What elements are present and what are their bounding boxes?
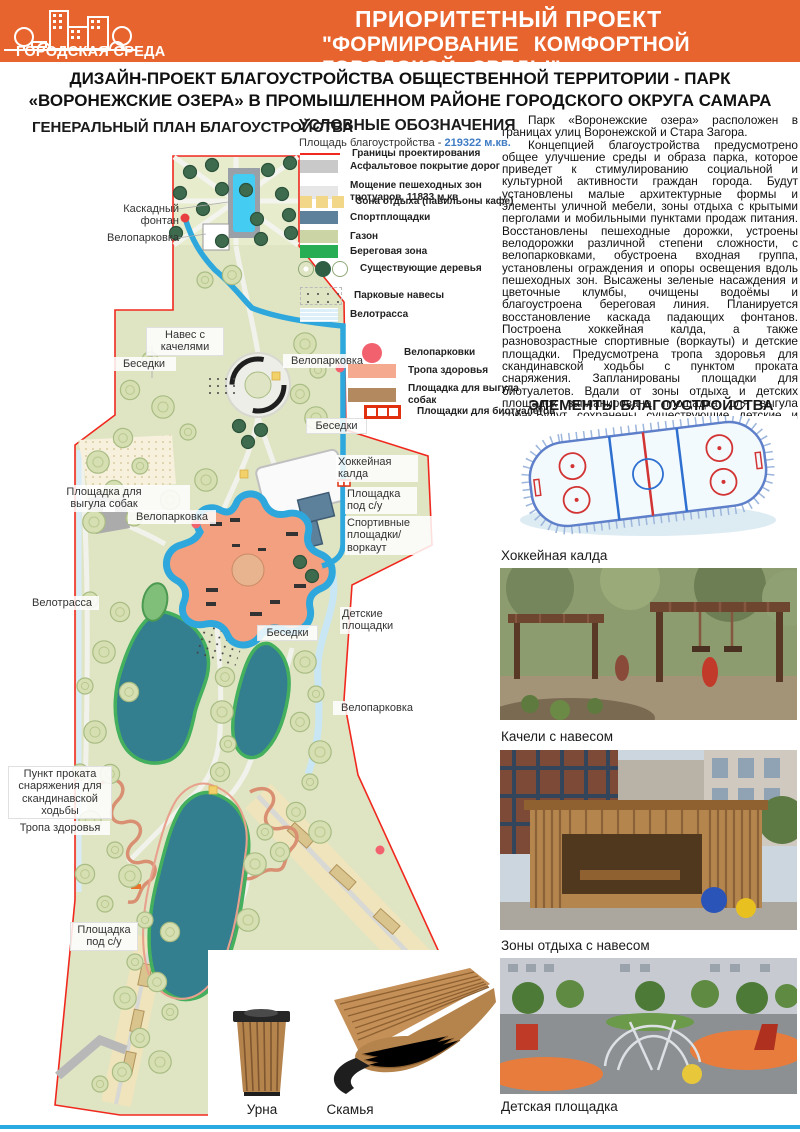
- map-label-hockey-rink: Хоккейная калда: [336, 455, 418, 482]
- bench-leg: [334, 1058, 370, 1094]
- map-label-bike-parking-3: Велопарковка: [128, 510, 216, 524]
- rest-area-canopy-photo: [500, 750, 797, 930]
- legend-swatch-bike-track: [300, 308, 338, 322]
- photo-caption-swings: Качели с навесом: [501, 729, 613, 744]
- bench-image: [298, 962, 496, 1096]
- person-figure: [702, 657, 718, 687]
- description-text: Парк «Воронежские озера» расположен в гр…: [502, 114, 798, 434]
- map-label-nordic-rental: Пункт проката снаряжения для скандинавск…: [8, 766, 112, 819]
- legend-item-sport: Спортплощадки: [300, 211, 430, 224]
- hockey-rink-image: [500, 416, 797, 544]
- legend-swatch-sport: [300, 211, 338, 224]
- legend-swatch-shore: [300, 245, 338, 258]
- legend-item-rest-zone: Зона отдыха (павильоны кафе): [300, 196, 513, 208]
- photo-caption-hockey: Хоккейная калда: [501, 548, 607, 563]
- legend-item-boundary: Границы проектирования: [300, 148, 480, 160]
- logo-title: ГОРОДСКАЯ СРЕДА: [16, 44, 186, 60]
- legend-swatch-bike-parkings: [362, 343, 382, 363]
- map-label-bike-track: Велотрасса: [25, 596, 99, 610]
- wooden-pavilion: [524, 800, 768, 908]
- map-label-kids-grounds: Детские площадки: [340, 607, 410, 634]
- yellow-ball: [736, 898, 756, 918]
- elements-heading: ЭЛЕМЕНТЫ БЛАГОУСТРОЙСТВА: [505, 397, 797, 414]
- legend-item-trees: Существующие деревья: [298, 261, 482, 277]
- legend-swatch-rest-zone: [300, 196, 344, 208]
- map-label-su-site-2: Площадка под с/у: [70, 922, 138, 951]
- map-label-dog-area: Площадка для выгула собак: [18, 485, 190, 512]
- map-label-su-site-1: Площадка под с/у: [345, 487, 417, 514]
- description-paragraph-2: Концепцией благоустройства предусмотрено…: [502, 139, 798, 434]
- map-label-gazebos-1: Беседки: [112, 357, 176, 371]
- legend-swatch-boundary: [300, 153, 340, 155]
- legend-item-shore: Береговая зона: [300, 245, 427, 258]
- legend-swatch-lawn: [300, 230, 338, 243]
- blue-ball: [701, 887, 727, 913]
- description-paragraph-1: Парк «Воронежские озера» расположен в гр…: [502, 114, 798, 139]
- legend-swatch-health-trail: [348, 364, 396, 378]
- legend-item-dog-area: Площадка для выгула собак: [348, 383, 519, 407]
- legend-item-bike-parkings: Велопарковки: [348, 343, 475, 363]
- page-title: ДИЗАЙН-ПРОЕКТ БЛАГОУСТРОЙСТВА ОБЩЕСТВЕНН…: [0, 68, 800, 112]
- page-title-line2: «ВОРОНЕЖСКИЕ ОЗЕРА» В ПРОМЫШЛЕННОМ РАЙОН…: [0, 90, 800, 112]
- legend-swatch-biotoilets: [364, 405, 401, 419]
- legend-item-asphalt: Асфальтовое покрытие дорог: [300, 160, 500, 173]
- photo-caption-playground: Детская площадка: [501, 1099, 618, 1114]
- playground-photo: [500, 958, 797, 1094]
- page-title-line1: ДИЗАЙН-ПРОЕКТ БЛАГОУСТРОЙСТВА ОБЩЕСТВЕНН…: [0, 68, 800, 90]
- map-label-bike-parking-4: Велопарковка: [333, 701, 421, 715]
- photo-caption-rest-area: Зоны отдыха с навесом: [501, 938, 650, 953]
- legend-swatch-dog-area: [348, 388, 396, 402]
- furniture-label-bin: Урна: [212, 1102, 312, 1117]
- header-banner: ГОРОДСКАЯ СРЕДА ПРИОРИТЕТНЫЙ ПРОЕКТ "ФОР…: [0, 0, 800, 62]
- map-label-gazebos-3: Беседки: [257, 625, 318, 641]
- header-line1: ПРИОРИТЕТНЫЙ ПРОЕКТ: [355, 6, 662, 33]
- map-label-bike-parking-1: Велопарковка: [93, 231, 181, 245]
- trash-bin-image: [228, 1005, 294, 1097]
- map-label-gazebos-2: Беседки: [306, 418, 367, 434]
- map-label-sport-grounds: Спортивные площадки/воркаут: [345, 516, 441, 555]
- legend-swatch-trees: [298, 261, 348, 277]
- legend-swatch-asphalt: [300, 160, 338, 173]
- bottom-rule: [0, 1125, 800, 1129]
- legend-item-health-trail: Тропа здоровья: [348, 364, 488, 378]
- legend-item-bike-track: Велотрасса: [300, 308, 408, 322]
- legend-swatch-canopies: [300, 287, 342, 305]
- legend-item-lawn: Газон: [300, 230, 378, 243]
- red-kiosk: [516, 1024, 538, 1050]
- furniture-label-bench: Скамья: [300, 1102, 400, 1117]
- yellow-dome: [682, 1064, 702, 1084]
- swings-canopy-photo: [500, 568, 797, 720]
- map-label-health-trail: Тропа здоровья: [10, 821, 110, 835]
- map-label-swing-canopy: Навес с качелями: [146, 327, 224, 356]
- map-label-cascade-fountain: Каскадный фонтан: [85, 202, 181, 229]
- legend-heading: УСЛОВНЫЕ ОБОЗНАЧЕНИЯ: [299, 117, 515, 135]
- person-figure: [615, 655, 629, 681]
- legend-item-canopies: Парковые навесы: [300, 287, 444, 305]
- park-canopy-grid: [206, 374, 240, 398]
